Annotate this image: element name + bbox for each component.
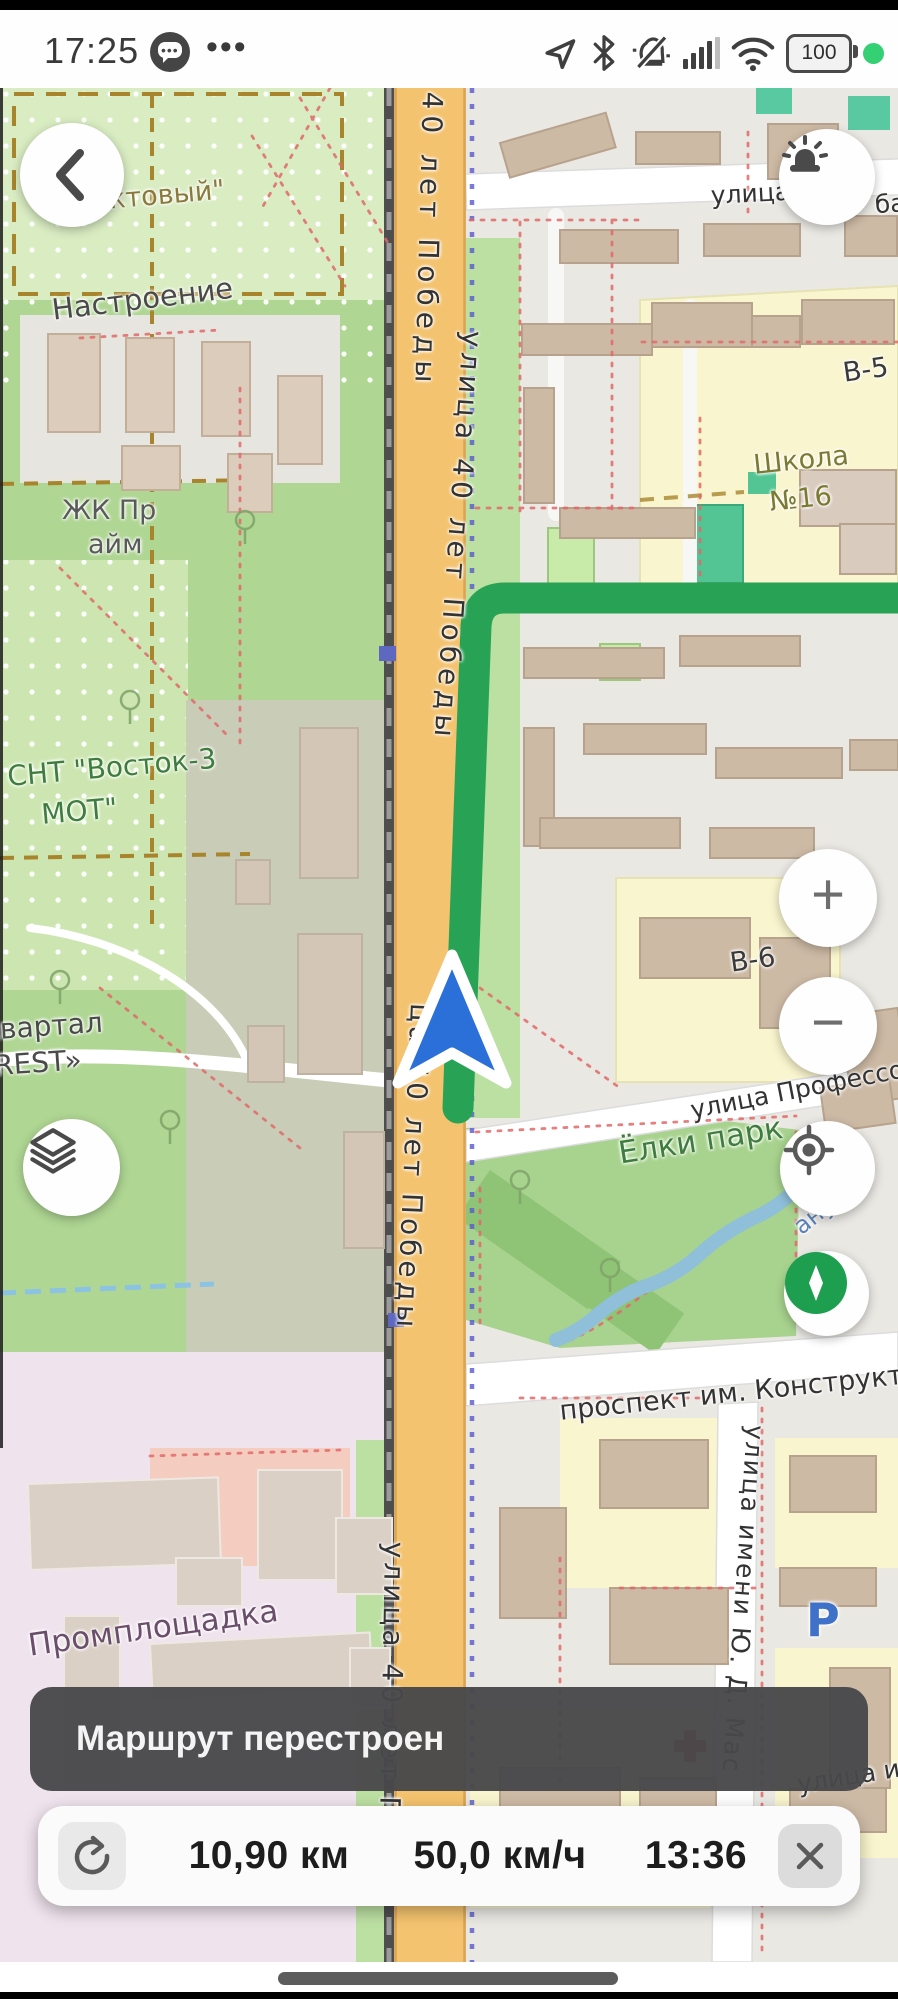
status-icons: 100	[542, 32, 884, 74]
left-edge-line	[0, 88, 3, 1448]
compass-icon	[784, 1251, 848, 1315]
back-button[interactable]	[20, 123, 124, 227]
toast-route-rebuilt: Маршрут перестроен	[30, 1687, 868, 1791]
close-icon	[793, 1839, 827, 1873]
report-alert-button[interactable]	[779, 129, 875, 225]
messenger-notification-icon: •••	[150, 32, 190, 72]
map-label: ЖК Пр	[62, 495, 156, 526]
chevron-left-icon	[20, 123, 124, 227]
bottom-bezel	[0, 1992, 898, 1999]
minus-icon: −	[811, 994, 845, 1058]
map-view[interactable]: уктовый" Настроение ЖК Пр айм СНТ "Восто…	[0, 88, 898, 1962]
map-label: айм	[88, 529, 142, 560]
battery-icon: 100	[786, 34, 852, 73]
vibrate-off-icon	[630, 33, 672, 73]
clock: 17:25	[44, 30, 139, 72]
close-route-button[interactable]	[778, 1824, 842, 1888]
compass-button[interactable]	[784, 1251, 869, 1336]
layers-icon	[23, 1119, 83, 1179]
my-location-button[interactable]	[780, 1121, 875, 1216]
battery-percent: 100	[801, 41, 836, 65]
current-location-arrow	[387, 947, 517, 1097]
map-label: МОТ"	[40, 791, 119, 831]
status-green-dot	[863, 43, 884, 64]
map-label: В-6	[728, 942, 777, 979]
wifi-icon	[731, 34, 775, 72]
parking-icon: P	[806, 1593, 840, 1647]
location-active-icon	[542, 35, 578, 71]
layers-button[interactable]	[23, 1119, 120, 1216]
street-label: ба	[874, 188, 898, 219]
refresh-icon	[66, 1830, 118, 1882]
route-info-panel: 10,90 км 50,0 км/ч 13:36	[38, 1806, 860, 1906]
plus-icon: +	[811, 866, 845, 930]
zoom-in-button[interactable]: +	[779, 849, 877, 947]
home-indicator[interactable]	[278, 1972, 618, 1985]
map-label: В-5	[841, 352, 890, 389]
arrival-time: 13:36	[626, 1806, 766, 1906]
locate-crosshair-icon	[780, 1121, 838, 1179]
status-bar: 17:25 ••• •••	[0, 10, 898, 88]
top-bezel	[0, 0, 898, 10]
toast-message: Маршрут перестроен	[76, 1719, 444, 1759]
map-label: №16	[768, 480, 833, 517]
gesture-bar-area	[0, 1962, 898, 1992]
zoom-out-button[interactable]: −	[779, 977, 877, 1075]
route-distance: 10,90 км	[164, 1806, 374, 1906]
more-notifications-icon: •••	[206, 28, 248, 67]
phone-screen: 17:25 ••• •••	[0, 0, 898, 1999]
signal-strength-icon	[683, 37, 720, 69]
current-speed: 50,0 км/ч	[380, 1806, 620, 1906]
siren-icon	[779, 129, 831, 181]
bluetooth-icon	[589, 34, 619, 72]
recalculate-route-button[interactable]	[58, 1822, 126, 1890]
